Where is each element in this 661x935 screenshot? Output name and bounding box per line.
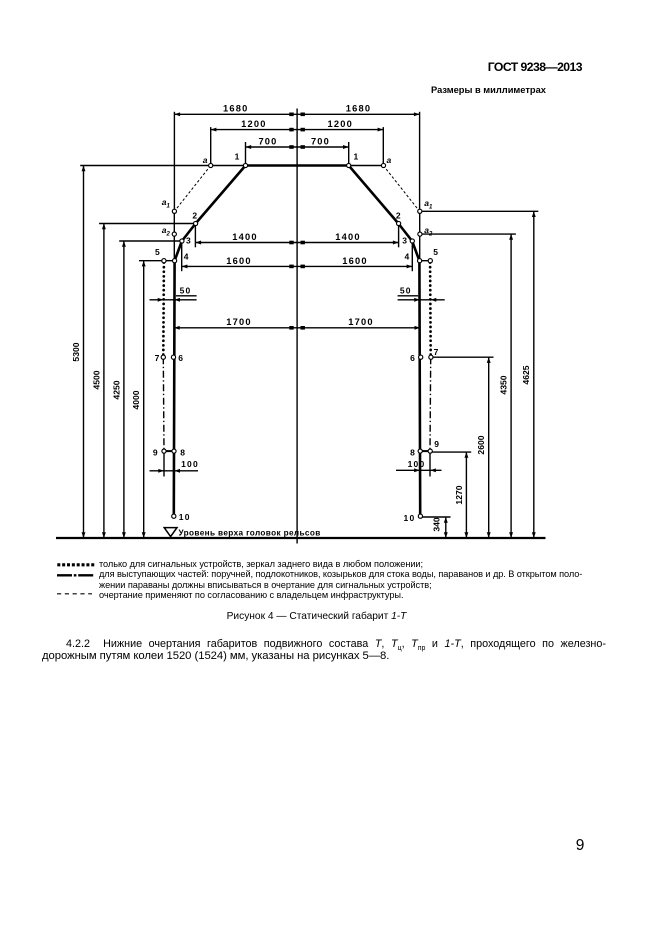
svg-text:Уровень верха головок рельсов: Уровень верха головок рельсов — [179, 529, 321, 538]
svg-text:7: 7 — [155, 353, 161, 363]
svg-text:3: 3 — [402, 235, 408, 245]
svg-text:9: 9 — [153, 447, 159, 457]
svg-text:10: 10 — [404, 513, 416, 523]
svg-text:4: 4 — [184, 252, 190, 262]
svg-text:1680: 1680 — [346, 104, 371, 114]
svg-text:8: 8 — [410, 447, 416, 457]
svg-text:4500: 4500 — [91, 370, 101, 389]
svg-text:8: 8 — [180, 447, 186, 457]
svg-text:a1: a1 — [424, 198, 433, 211]
svg-text:5300: 5300 — [71, 342, 81, 361]
svg-text:1400: 1400 — [335, 232, 360, 242]
svg-text:50: 50 — [400, 286, 412, 296]
svg-text:a2: a2 — [424, 225, 433, 238]
svg-text:1700: 1700 — [226, 317, 251, 327]
svg-text:1680: 1680 — [223, 104, 248, 114]
svg-text:1: 1 — [235, 152, 241, 162]
svg-text:100: 100 — [408, 459, 426, 469]
svg-text:340: 340 — [432, 517, 442, 532]
svg-text:4: 4 — [404, 252, 410, 262]
svg-text:1: 1 — [354, 152, 360, 162]
svg-text:2600: 2600 — [476, 435, 486, 454]
svg-text:100: 100 — [181, 459, 199, 469]
svg-text:5: 5 — [433, 247, 439, 257]
svg-text:6: 6 — [178, 353, 184, 363]
svg-text:6: 6 — [410, 353, 416, 363]
svg-text:4350: 4350 — [499, 375, 509, 394]
svg-text:a2: a2 — [162, 225, 171, 238]
svg-text:700: 700 — [311, 136, 330, 146]
svg-text:1270: 1270 — [454, 485, 464, 504]
svg-text:a1: a1 — [162, 197, 171, 210]
svg-text:10: 10 — [179, 512, 191, 522]
svg-text:1600: 1600 — [342, 256, 367, 266]
svg-text:3: 3 — [186, 235, 192, 245]
svg-text:1700: 1700 — [348, 317, 373, 327]
svg-text:7: 7 — [434, 347, 440, 357]
svg-text:4625: 4625 — [521, 365, 531, 384]
svg-text:700: 700 — [258, 136, 277, 146]
svg-text:a: a — [387, 155, 392, 165]
svg-text:1400: 1400 — [232, 232, 257, 242]
svg-text:2: 2 — [192, 211, 198, 221]
svg-text:4000: 4000 — [131, 390, 141, 409]
svg-text:1200: 1200 — [328, 119, 353, 129]
svg-text:5: 5 — [155, 247, 161, 257]
svg-text:1600: 1600 — [226, 256, 251, 266]
svg-text:2: 2 — [396, 211, 402, 221]
svg-text:1200: 1200 — [241, 119, 266, 129]
svg-text:4250: 4250 — [111, 380, 121, 399]
svg-text:a: a — [203, 155, 208, 165]
svg-text:9: 9 — [434, 439, 440, 449]
svg-text:50: 50 — [180, 286, 192, 296]
